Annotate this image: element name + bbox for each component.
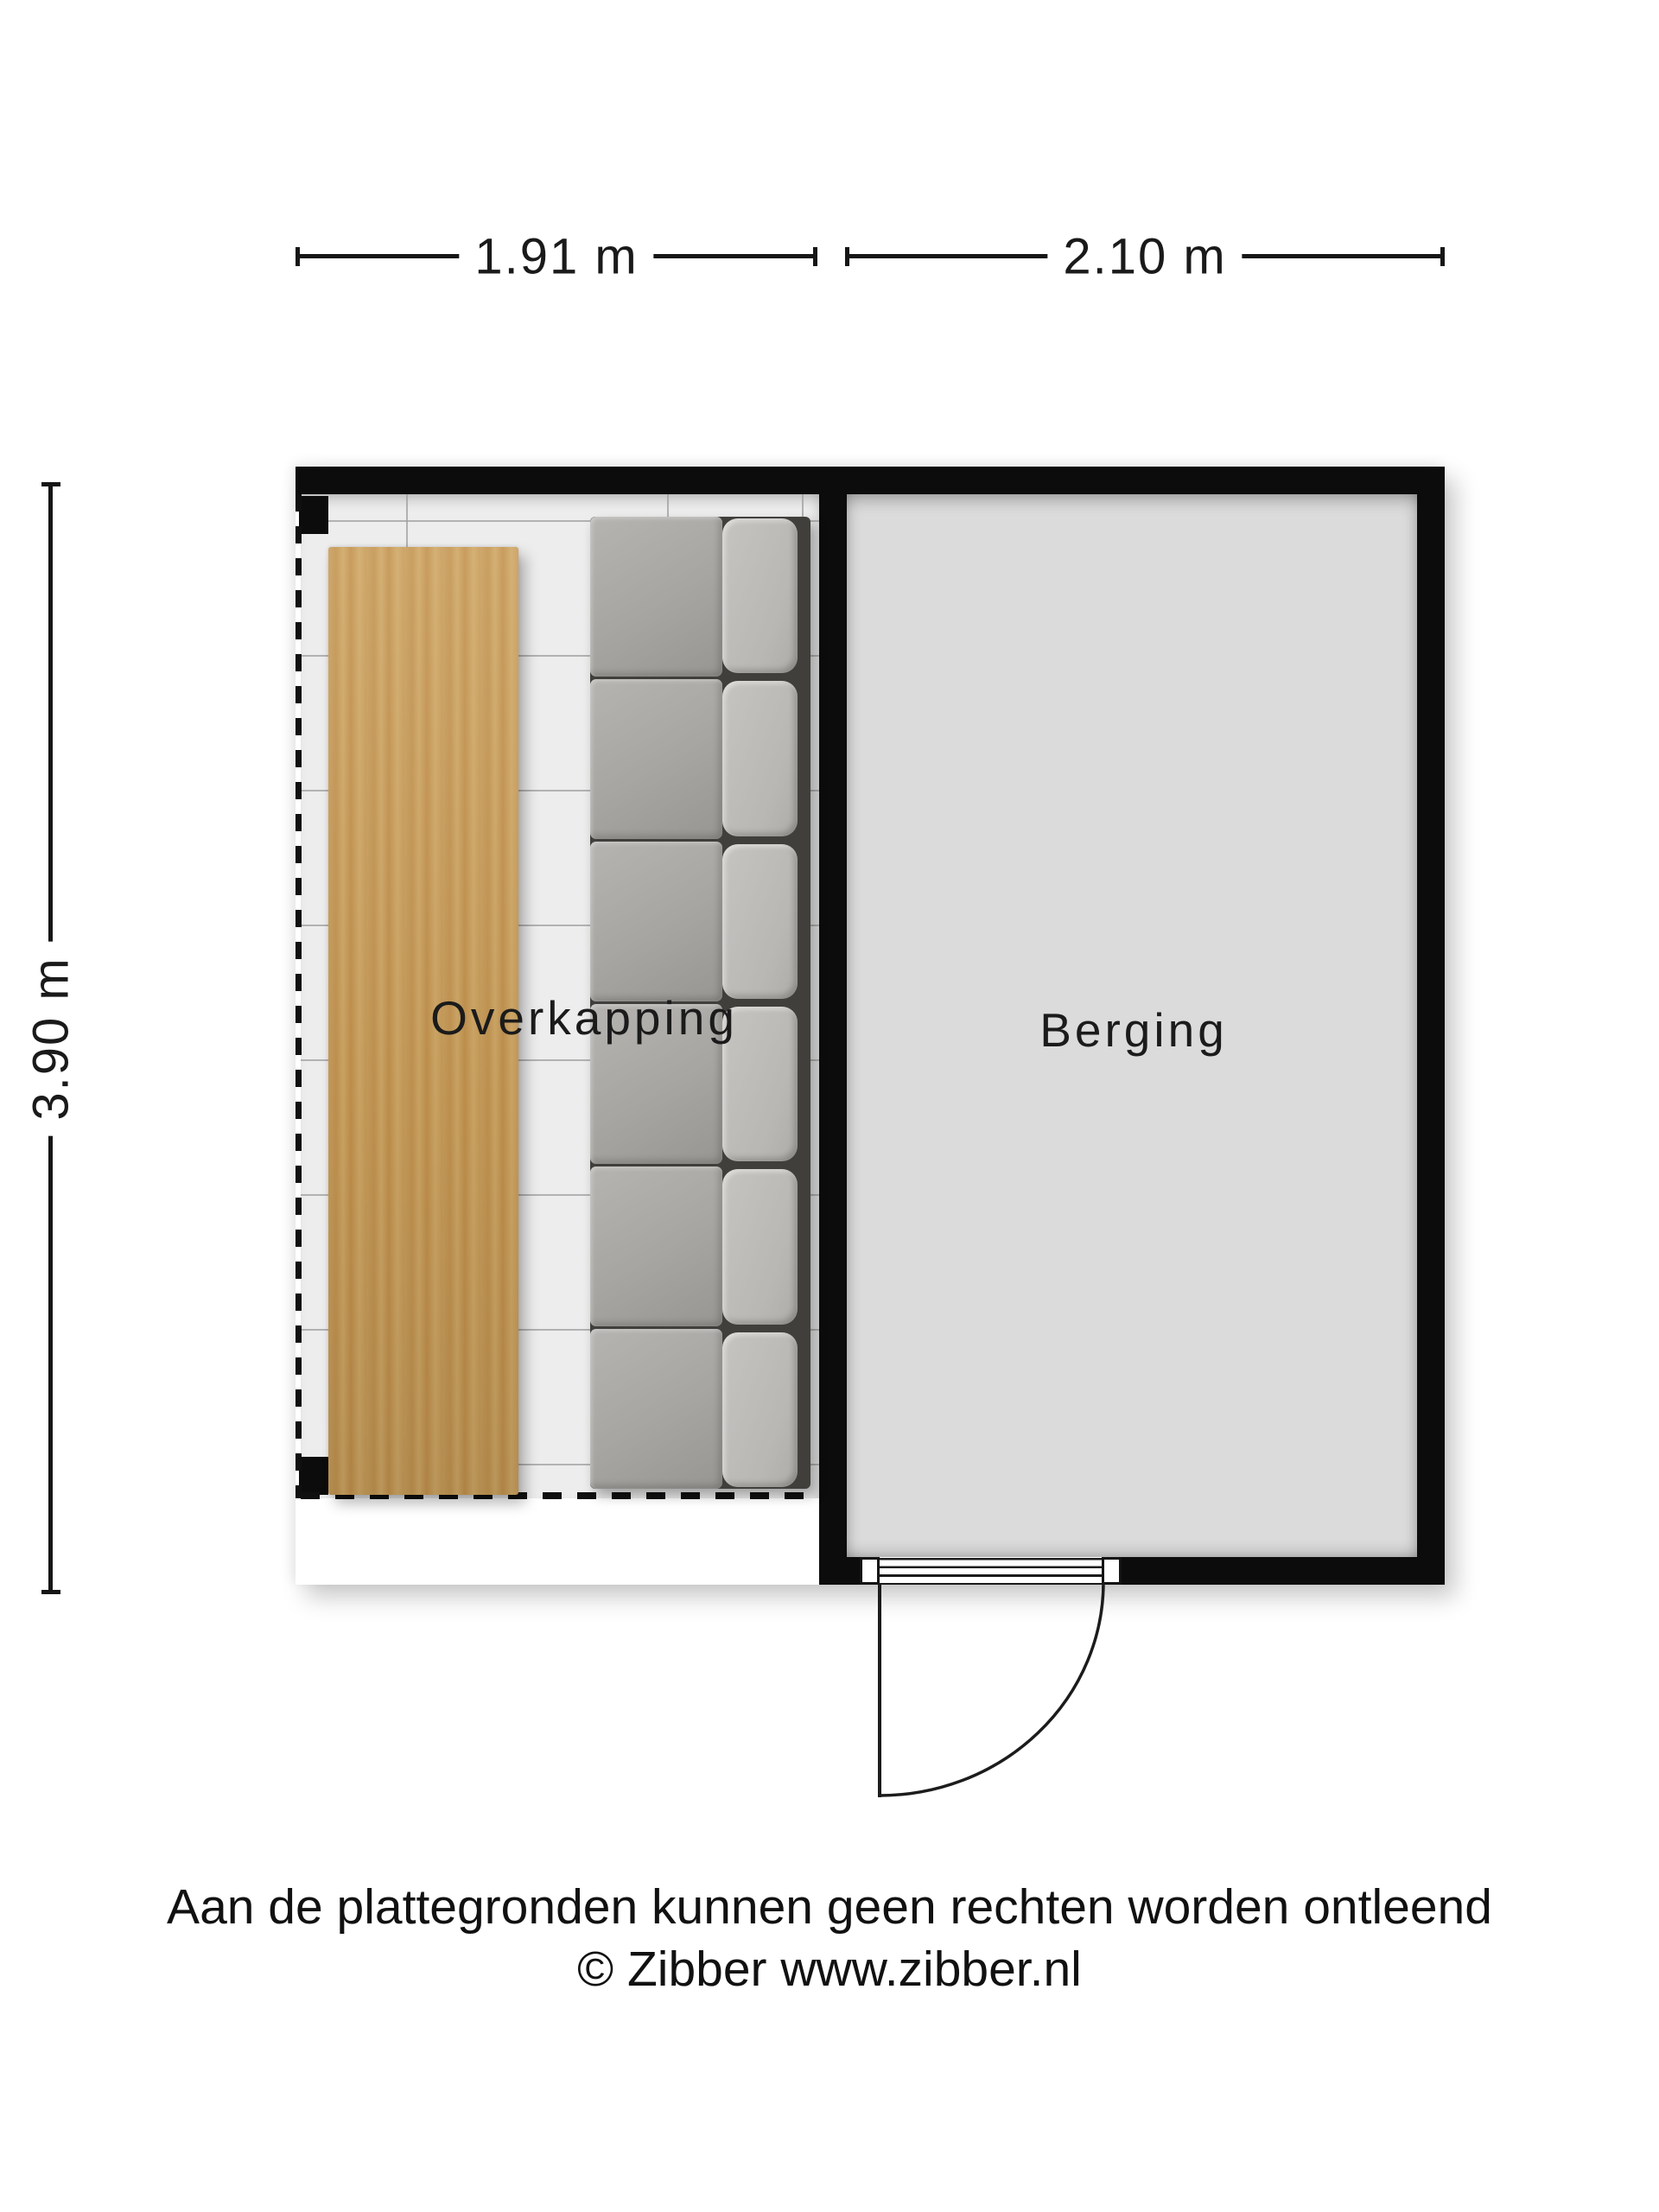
sofa-back-cushion xyxy=(722,681,798,836)
dimension-tick xyxy=(41,482,60,486)
wall-right xyxy=(1417,494,1445,1585)
dimension-label: 2.10 m xyxy=(1047,226,1242,288)
dimension-tick xyxy=(845,247,849,266)
dimension-tick xyxy=(1440,247,1445,266)
dimension-tick xyxy=(296,247,300,266)
door-swing-arc xyxy=(871,1574,1113,1804)
sofa-seat-cushion xyxy=(590,842,722,1001)
sofa-seat-cushion xyxy=(590,1329,722,1489)
sofa-back-cushion xyxy=(722,844,798,999)
dimension-label: 3.90 m xyxy=(21,941,82,1135)
dimension-top-left: 1.91 m xyxy=(296,247,817,266)
sofa-seat-cushion xyxy=(590,517,722,677)
wall-divider xyxy=(819,494,847,1557)
dimension-label: 1.91 m xyxy=(459,226,653,288)
dimension-top-right: 2.10 m xyxy=(845,247,1445,266)
sofa-back-cushion xyxy=(722,1169,798,1324)
wall-bottom xyxy=(1122,1557,1445,1585)
floor-plank-joint xyxy=(406,494,408,548)
footer-copyright: © Zibber www.zibber.nl xyxy=(0,1939,1659,2001)
sofa-seat-cushion xyxy=(590,1166,722,1326)
wall-top xyxy=(296,467,1445,494)
sofa-back-cushion xyxy=(722,1332,798,1487)
room-label-overkapping: Overkapping xyxy=(430,990,738,1046)
corner-post xyxy=(299,1457,328,1495)
dimension-left: 3.90 m xyxy=(41,482,60,1594)
sofa-seat-cushion xyxy=(590,679,722,839)
dimension-tick xyxy=(41,1590,60,1594)
footer-disclaimer: Aan de plattegronden kunnen geen rechten… xyxy=(0,1877,1659,1939)
sofa-back-cushion xyxy=(722,518,798,673)
dimension-tick xyxy=(813,247,817,266)
room-label-berging: Berging xyxy=(1039,1002,1228,1058)
open-boundary-dashed-left xyxy=(296,494,302,1498)
footer: Aan de plattegronden kunnen geen rechten… xyxy=(0,1877,1659,2001)
wall-bottom xyxy=(819,1557,861,1585)
corner-post xyxy=(299,496,328,534)
floorplan-canvas: 1.91 m 2.10 m 3.90 m xyxy=(0,0,1659,2212)
